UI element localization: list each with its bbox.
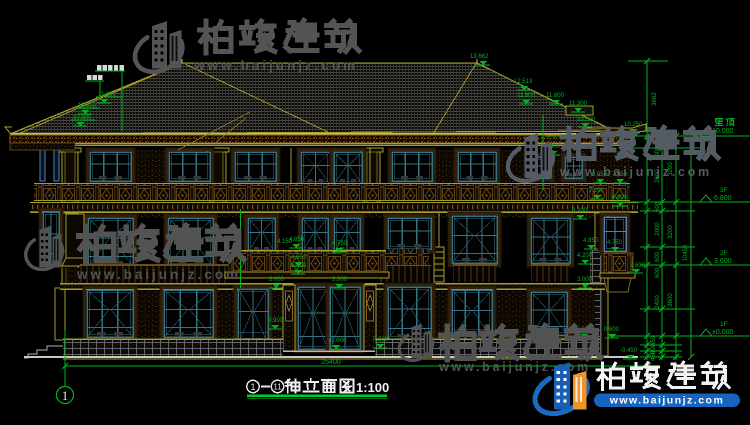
svg-text:www.baijunjz.com: www.baijunjz.com <box>559 165 712 179</box>
svg-text:3.000: 3.000 <box>332 277 348 283</box>
svg-text:4.750: 4.750 <box>607 240 623 246</box>
svg-text:±0.000: ±0.000 <box>328 338 347 344</box>
svg-text:3.600: 3.600 <box>714 258 732 265</box>
svg-text:2F: 2F <box>720 250 728 257</box>
svg-text:13.662: 13.662 <box>470 54 489 60</box>
svg-text:2000: 2000 <box>655 222 661 236</box>
svg-text:www.baijunjz.com: www.baijunjz.com <box>609 395 725 407</box>
svg-text:4.850: 4.850 <box>583 238 599 244</box>
svg-text:3662: 3662 <box>652 92 658 106</box>
svg-text:11.800: 11.800 <box>517 93 536 99</box>
svg-text:6.800: 6.800 <box>612 195 628 201</box>
svg-text:11: 11 <box>273 383 282 392</box>
svg-text:www.baijunjz.com: www.baijunjz.com <box>76 267 241 282</box>
svg-text:0.900: 0.900 <box>268 318 284 324</box>
svg-text:±0.000: ±0.000 <box>712 329 733 336</box>
svg-text:12.513: 12.513 <box>514 79 533 85</box>
svg-text:7.200: 7.200 <box>589 188 605 194</box>
svg-text:3.000: 3.000 <box>577 277 593 283</box>
svg-text:4.000: 4.000 <box>291 255 307 261</box>
svg-text:6.200: 6.200 <box>572 208 588 214</box>
svg-text:25400: 25400 <box>321 359 341 366</box>
svg-text:2400: 2400 <box>655 295 661 309</box>
svg-text:11.800: 11.800 <box>546 93 565 99</box>
svg-text:-0.450: -0.450 <box>620 348 638 354</box>
svg-text:6.800: 6.800 <box>714 195 732 202</box>
svg-text:1: 1 <box>250 382 255 392</box>
svg-text:600: 600 <box>655 251 661 262</box>
svg-text:450: 450 <box>651 350 657 361</box>
svg-text:1:100: 1:100 <box>356 380 389 395</box>
svg-text:0.300: 0.300 <box>373 337 389 343</box>
svg-text:600: 600 <box>655 267 661 278</box>
svg-text:0.600: 0.600 <box>604 327 620 333</box>
svg-text:5.400: 5.400 <box>291 263 307 269</box>
svg-text:10450: 10450 <box>683 244 689 261</box>
svg-text:1F: 1F <box>720 321 728 328</box>
svg-text:10.250: 10.250 <box>624 122 643 128</box>
svg-text:3.600: 3.600 <box>630 263 646 269</box>
svg-text:4.150: 4.150 <box>277 239 293 245</box>
svg-text:4.200: 4.200 <box>577 253 593 259</box>
svg-text:10.500: 10.500 <box>577 117 596 123</box>
svg-text:3200: 3200 <box>668 225 674 239</box>
svg-text:4.750: 4.750 <box>332 241 348 247</box>
svg-text:1: 1 <box>62 388 69 403</box>
svg-text:11.300: 11.300 <box>569 101 588 107</box>
svg-text:www.baijunjz.com: www.baijunjz.com <box>193 58 358 73</box>
svg-text:3F: 3F <box>720 187 728 194</box>
svg-text:3600: 3600 <box>668 293 674 307</box>
svg-text:600: 600 <box>655 201 661 212</box>
svg-text:3.000: 3.000 <box>269 277 285 283</box>
